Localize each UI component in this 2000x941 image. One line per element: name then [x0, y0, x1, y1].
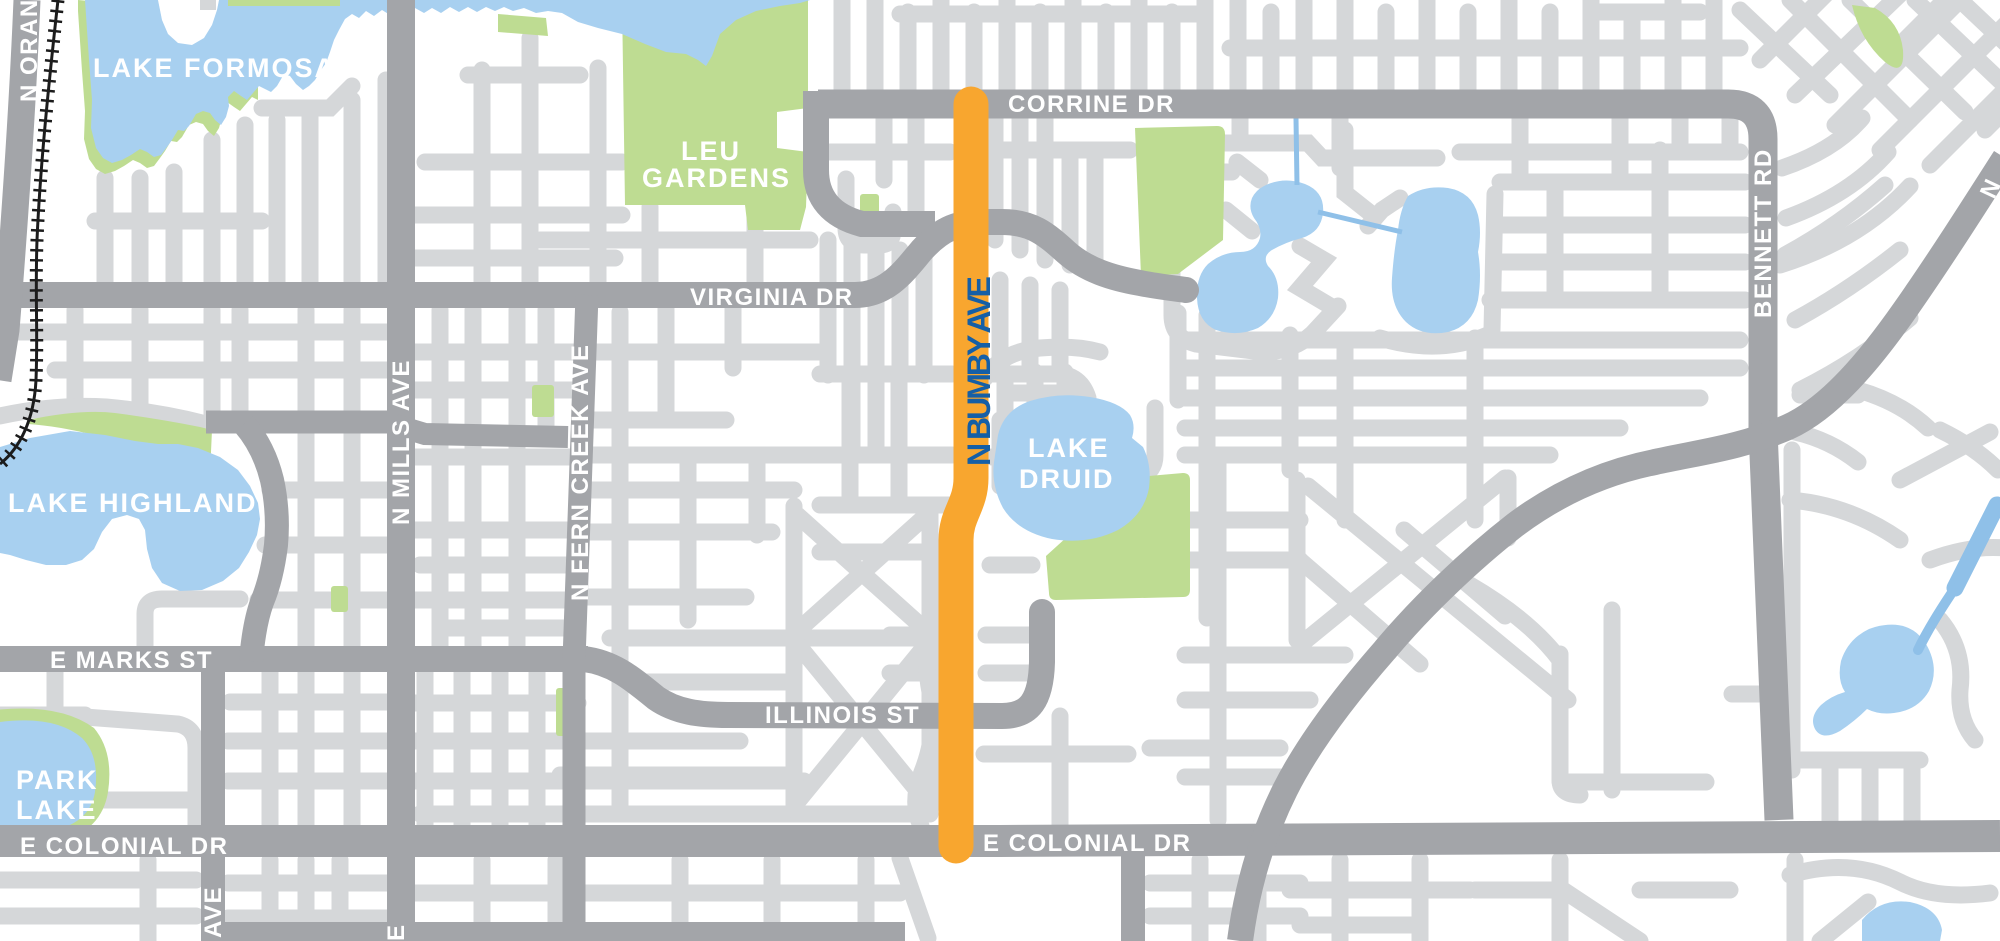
- svg-text:LAKE: LAKE: [1028, 433, 1110, 463]
- svg-text:AVE: AVE: [200, 886, 227, 938]
- svg-text:PARK: PARK: [16, 765, 99, 795]
- svg-text:LAKE HIGHLAND: LAKE HIGHLAND: [8, 488, 258, 518]
- svg-text:VIRGINIA DR: VIRGINIA DR: [690, 284, 854, 311]
- svg-text:E COLONIAL DR: E COLONIAL DR: [20, 833, 228, 860]
- svg-text:N MILLS AVE: N MILLS AVE: [388, 359, 415, 525]
- svg-text:DRUID: DRUID: [1019, 464, 1115, 494]
- svg-text:E COLONIAL DR: E COLONIAL DR: [983, 830, 1191, 857]
- svg-text:GARDENS: GARDENS: [642, 163, 791, 193]
- svg-text:ILLINOIS ST: ILLINOIS ST: [765, 702, 920, 729]
- svg-text:LEU: LEU: [681, 136, 741, 166]
- svg-text:CORRINE DR: CORRINE DR: [1008, 91, 1175, 118]
- svg-text:E: E: [383, 923, 410, 941]
- svg-text:N FERN CREEK AVE: N FERN CREEK AVE: [567, 344, 594, 601]
- svg-text:LAKE: LAKE: [16, 795, 98, 825]
- svg-text:E MARKS ST: E MARKS ST: [50, 647, 213, 674]
- svg-text:LAKE FORMOSA: LAKE FORMOSA: [93, 53, 336, 83]
- svg-text:N ORANGE AVE: N ORANGE AVE: [16, 0, 43, 102]
- svg-text:BENNETT RD: BENNETT RD: [1750, 148, 1777, 318]
- svg-text:N BUMBY AVE: N BUMBY AVE: [961, 276, 997, 466]
